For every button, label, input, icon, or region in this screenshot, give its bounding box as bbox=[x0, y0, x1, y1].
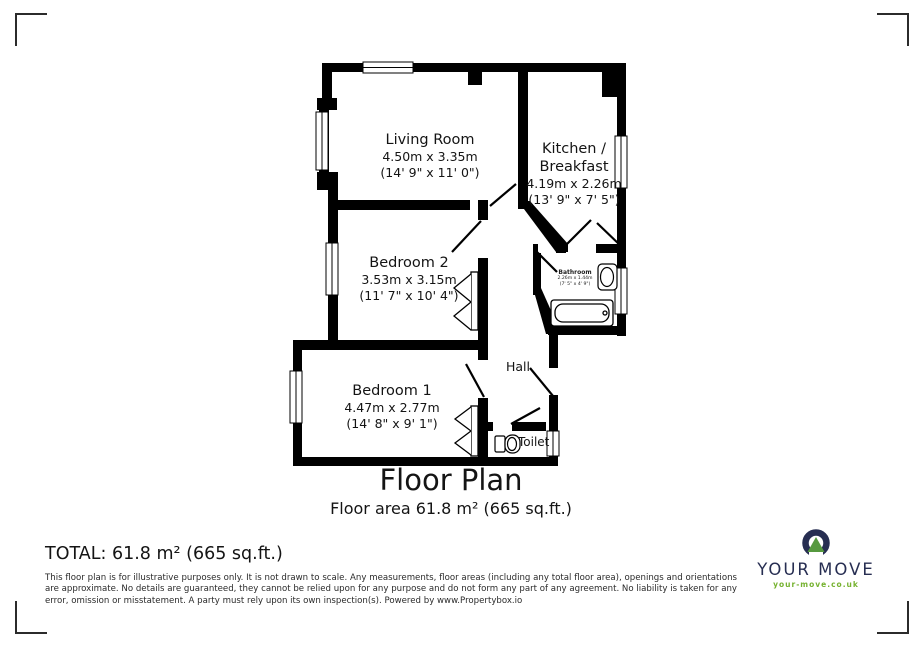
window-bedroom1-left bbox=[290, 371, 302, 423]
door-bedroom2 bbox=[452, 221, 481, 252]
logo-website: your-move.co.uk bbox=[736, 580, 896, 589]
your-move-logo-icon bbox=[794, 526, 838, 560]
door-toilet bbox=[511, 408, 540, 424]
room-name: Bathroom bbox=[542, 269, 608, 276]
your-move-logo: YOUR MOVE your-move.co.uk bbox=[736, 524, 896, 590]
room-name: Living Room bbox=[350, 131, 510, 149]
room-dims-metric: 4.47m x 2.77m bbox=[317, 400, 467, 416]
label-bedroom2: Bedroom 2 3.53m x 3.15m (11' 7" x 10' 4"… bbox=[334, 254, 484, 303]
floor-plan-page: Living Room 4.50m x 3.35m (14' 9" x 11' … bbox=[0, 0, 923, 646]
label-kitchen: Kitchen / Breakfast 4.19m x 2.26m (13' 9… bbox=[513, 140, 635, 207]
logo-brand-name: YOUR MOVE bbox=[736, 560, 896, 579]
total-area: TOTAL: 61.8 m² (665 sq.ft.) bbox=[45, 544, 283, 564]
room-dims-metric: 3.53m x 3.15m bbox=[334, 272, 484, 288]
room-name: Breakfast bbox=[513, 158, 635, 176]
room-name: Bedroom 1 bbox=[317, 382, 467, 400]
label-living-room: Living Room 4.50m x 3.35m (14' 9" x 11' … bbox=[350, 131, 510, 180]
room-dims-imperial: (13' 9" x 7' 5") bbox=[513, 192, 635, 208]
plan-subtitle: Floor area 61.8 m² (665 sq.ft.) bbox=[301, 499, 601, 518]
room-dims-metric: 4.19m x 2.26m bbox=[513, 176, 635, 192]
logo-triangle bbox=[808, 537, 825, 552]
room-dims-imperial: (7' 5" x 4' 9") bbox=[542, 282, 608, 288]
room-dims-imperial: (14' 8" x 9' 1") bbox=[317, 416, 467, 432]
label-toilet: Toilet bbox=[518, 435, 558, 449]
label-bedroom1: Bedroom 1 4.47m x 2.77m (14' 8" x 9' 1") bbox=[317, 382, 467, 431]
label-hall: Hall bbox=[496, 359, 540, 374]
label-bathroom: Bathroom 2.26m x 1.44m (7' 5" x 4' 9") bbox=[542, 269, 608, 287]
door-bedroom1 bbox=[466, 364, 484, 397]
room-dims-metric: 4.50m x 3.35m bbox=[350, 149, 510, 165]
room-dims-imperial: (14' 9" x 11' 0") bbox=[350, 165, 510, 181]
door-kitchen bbox=[564, 220, 591, 247]
room-name: Bedroom 2 bbox=[334, 254, 484, 272]
toilet-fixture bbox=[495, 435, 520, 453]
window-living-top bbox=[363, 62, 413, 73]
window-living-left bbox=[316, 112, 328, 170]
plan-title: Floor Plan bbox=[291, 463, 611, 497]
room-dims-imperial: (11' 7" x 10' 4") bbox=[334, 288, 484, 304]
disclaimer-text: This floor plan is for illustrative purp… bbox=[45, 573, 737, 607]
bathtub bbox=[551, 300, 613, 326]
room-name: Kitchen / bbox=[513, 140, 635, 158]
